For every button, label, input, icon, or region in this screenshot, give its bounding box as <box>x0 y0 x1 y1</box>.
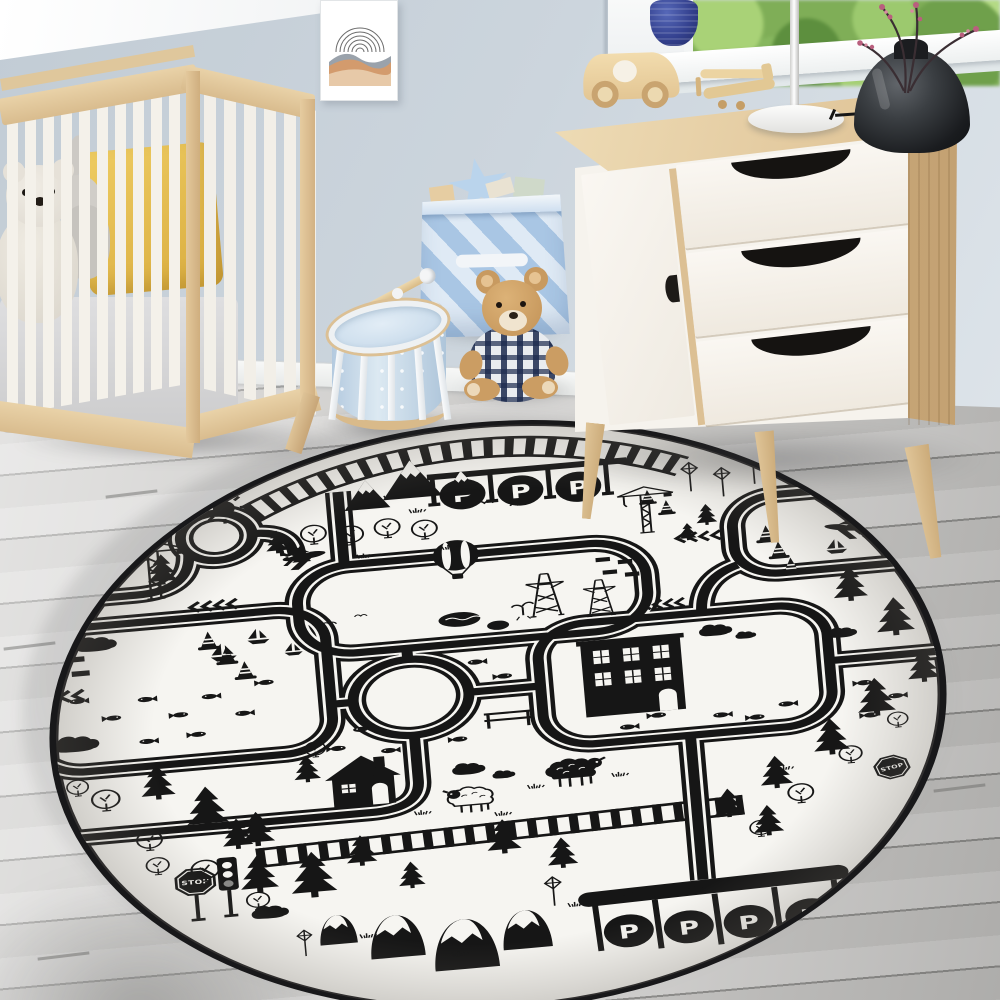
wooden-toy-car <box>582 51 680 100</box>
teddy-leg <box>522 376 558 399</box>
teddy-foot-pad <box>467 383 480 396</box>
car-wheel <box>591 80 619 108</box>
teddy-inner-ear <box>481 275 493 287</box>
dresser-drawers <box>676 139 935 425</box>
plane-wheel <box>718 100 727 109</box>
crib-spindles-front <box>0 90 196 417</box>
teddy-bear <box>452 258 576 400</box>
teddy-foot-pad <box>542 381 555 394</box>
dresser-leg <box>573 422 608 520</box>
blossom-branches <box>820 0 1000 95</box>
plane-propeller <box>695 77 701 96</box>
dresser-leg <box>752 430 786 544</box>
teddy-muzzle <box>499 310 527 331</box>
car-wheel <box>641 81 669 109</box>
crib-spindles-side <box>196 83 316 415</box>
teddy-leg <box>464 378 500 401</box>
toy-drum <box>326 258 456 433</box>
car-window-hole <box>612 60 637 83</box>
teddy-eye <box>520 301 526 307</box>
wood-grain <box>908 129 957 425</box>
dresser-leg <box>902 443 948 560</box>
door-handle[interactable] <box>664 275 680 303</box>
crib-corner-post <box>186 71 200 443</box>
dresser <box>545 85 975 575</box>
nursery-room-photo: P P P P P P P <box>0 0 1000 1000</box>
lamp-pole <box>790 0 799 120</box>
teddy-nose <box>509 312 518 319</box>
teddy-inner-ear <box>529 272 541 284</box>
drum-knob <box>392 288 403 299</box>
plane-wheel <box>736 101 745 110</box>
plane-tail <box>761 63 774 82</box>
drawer-handle[interactable] <box>751 326 873 361</box>
drawer-handle[interactable] <box>741 238 863 273</box>
plane-wing <box>700 69 768 78</box>
crib <box>0 55 345 455</box>
drumstick-tip <box>417 265 439 287</box>
crib-right-post <box>300 99 315 411</box>
teddy-eye <box>496 302 502 308</box>
